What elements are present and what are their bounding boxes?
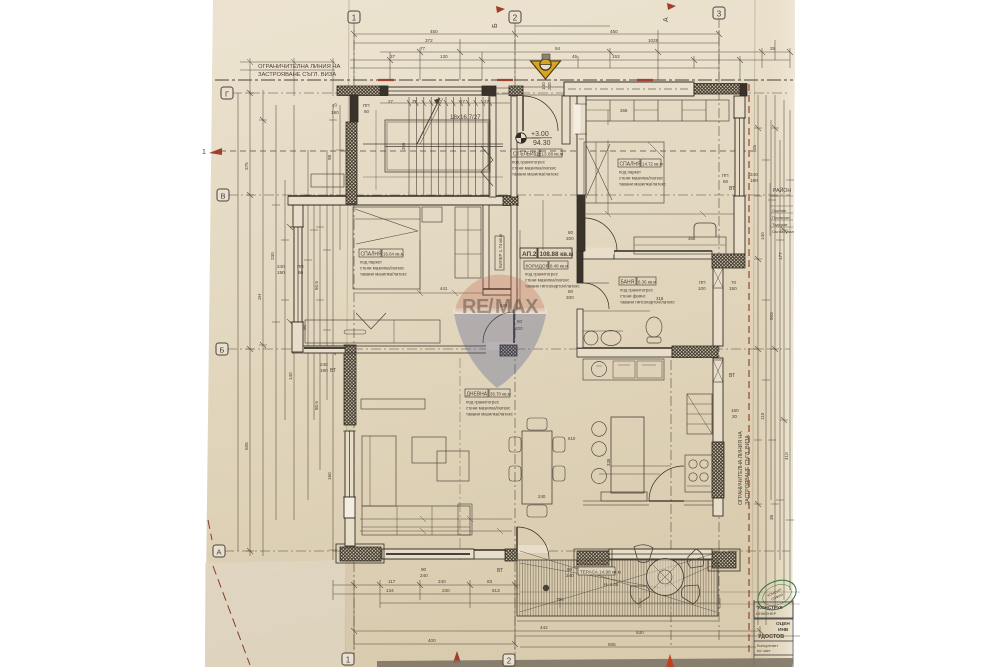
svg-text:153: 153 (612, 54, 620, 59)
svg-text:ТЕРАСА 14.98 кв.м: ТЕРАСА 14.98 кв.м (580, 570, 621, 575)
svg-text:А: А (663, 17, 670, 22)
svg-text:90: 90 (567, 567, 573, 572)
svg-text:под гранитогрес: под гранитогрес (525, 272, 559, 277)
svg-text:375: 375 (244, 162, 249, 170)
svg-text:2: 2 (513, 14, 518, 23)
svg-text:60.5: 60.5 (314, 281, 319, 290)
svg-text:80: 80 (568, 289, 574, 294)
svg-text:под гранитогрес: под гранитогрес (620, 288, 654, 293)
svg-text:190: 190 (277, 270, 285, 275)
svg-text:КИЛЕР 1.74 кв.м: КИЛЕР 1.74 кв.м (498, 234, 503, 268)
svg-text:20: 20 (732, 414, 738, 419)
svg-text:240: 240 (566, 573, 574, 578)
svg-text:В: В (220, 192, 225, 201)
svg-text:стени мазилка/латекс: стени мазилка/латекс (466, 406, 511, 411)
svg-text:98: 98 (327, 154, 332, 160)
svg-text:400: 400 (428, 638, 436, 643)
svg-text:8.48 кв.м: 8.48 кв.м (550, 264, 568, 269)
svg-text:190: 190 (750, 178, 758, 183)
svg-text:Н=1.05: Н=1.05 (604, 582, 619, 587)
svg-text:ОГРАНИЧИТЕЛНА ЛИНИЯ НА: ОГРАНИЧИТЕЛНА ЛИНИЯ НА (258, 64, 341, 70)
svg-text:БАНЯ: БАНЯ (621, 280, 635, 286)
svg-text:стени мазилка/латекс: стени мазилка/латекс (525, 278, 570, 283)
svg-text:610: 610 (568, 436, 576, 441)
svg-text:стени мазилка/латекс: стени мазилка/латекс (619, 176, 664, 181)
svg-text:стени мазилка/латекс: стени мазилка/латекс (512, 166, 557, 171)
svg-text:140: 140 (288, 372, 293, 380)
svg-text:1: 1 (346, 656, 351, 665)
svg-text:27: 27 (436, 99, 441, 104)
svg-text:90: 90 (302, 324, 307, 330)
svg-text:200: 200 (547, 82, 552, 90)
svg-text:150: 150 (731, 408, 739, 413)
svg-text:200: 200 (566, 295, 574, 300)
svg-text:100: 100 (541, 82, 546, 90)
svg-text:140: 140 (760, 232, 765, 240)
svg-text:134: 134 (386, 588, 394, 593)
svg-text:под гранитогрес: под гранитогрес (512, 160, 546, 165)
svg-text:3: 3 (717, 10, 722, 19)
svg-text:ЗАСТРОЯВАНЕ СЪГЛ. ВИЗА: ЗАСТРОЯВАНЕ СЪГЛ. ВИЗА (258, 72, 336, 78)
svg-text:тавани гипсокартон/латекс: тавани гипсокартон/латекс (620, 300, 675, 305)
svg-text:по част: по част (757, 648, 771, 653)
svg-text:190: 190 (320, 368, 328, 373)
svg-text:ВТ: ВТ (729, 373, 735, 379)
svg-text:441: 441 (440, 286, 448, 291)
svg-text:"КОНСТРУК: "КОНСТРУК (756, 605, 783, 610)
svg-text:А: А (216, 548, 221, 557)
svg-text:240: 240 (277, 264, 285, 269)
svg-text:Г: Г (225, 90, 229, 99)
svg-text:110: 110 (760, 412, 765, 420)
svg-text:14.72 кв.м: 14.72 кв.м (642, 162, 663, 167)
svg-text:613: 613 (492, 588, 500, 593)
svg-text:ОГРАНИЧИТЕЛНА ЛИНИЯ НА: ОГРАНИЧИТЕЛНА ЛИНИЯ НА (738, 431, 744, 505)
svg-text:Тодоров: Тодоров (772, 222, 787, 227)
svg-text:Б: Б (220, 346, 225, 355)
svg-text:MAX: MAX (495, 296, 539, 318)
svg-text:27: 27 (460, 99, 465, 104)
svg-text:706: 706 (556, 597, 564, 602)
svg-text:318: 318 (656, 296, 664, 301)
svg-text:25: 25 (752, 144, 757, 150)
svg-text:38: 38 (769, 514, 774, 520)
svg-text:240: 240 (320, 362, 328, 367)
svg-text:под паркет: под паркет (619, 170, 641, 175)
svg-text:240: 240 (438, 579, 446, 584)
svg-text:335: 335 (606, 458, 611, 466)
svg-text:СПАЛНЯ: СПАЛНЯ (361, 252, 383, 258)
svg-text:80.5: 80.5 (314, 401, 319, 410)
svg-text:372: 372 (425, 38, 433, 43)
svg-text:94: 94 (555, 46, 561, 51)
svg-text:тавани мазилка/латекс: тавани мазилка/латекс (512, 172, 560, 177)
svg-text:тавани мазилка/латекс: тавани мазилка/латекс (360, 272, 408, 277)
svg-text:190: 190 (331, 110, 339, 115)
svg-text:СПАЛНЯ: СПАЛНЯ (620, 162, 642, 168)
svg-text:355: 355 (401, 142, 406, 150)
svg-text:27: 27 (484, 99, 489, 104)
svg-text:ИНЖЕНЕР: ИНЖЕНЕР (756, 611, 777, 616)
svg-text:тавани мазилка/латекс: тавани мазилка/латекс (466, 412, 514, 417)
svg-text:230: 230 (442, 588, 450, 593)
svg-text:60: 60 (723, 179, 729, 184)
svg-text:13.08 кв.м: 13.08 кв.м (542, 152, 564, 157)
svg-text:ПП: ПП (363, 103, 370, 108)
svg-text:36.70 кв.м: 36.70 кв.м (490, 392, 511, 397)
svg-text:КОРИДОР: КОРИДОР (526, 264, 549, 270)
svg-text:под паркет: под паркет (360, 260, 382, 265)
svg-text:РАЙОН: РАЙОН (773, 186, 791, 194)
svg-text:АП.2: АП.2 (522, 251, 537, 258)
svg-text:16.64 кв.м: 16.64 кв.м (383, 252, 404, 257)
svg-text:368: 368 (620, 108, 628, 113)
svg-text:стени мазилка/латекс: стени мазилка/латекс (360, 266, 405, 271)
svg-text:94.30: 94.30 (533, 140, 551, 147)
svg-text:442: 442 (540, 625, 548, 630)
svg-text:ПП: ПП (699, 280, 706, 285)
svg-text:80: 80 (568, 230, 574, 235)
svg-text:1029: 1029 (648, 38, 659, 43)
svg-text:77: 77 (420, 46, 426, 51)
svg-text:60: 60 (298, 270, 304, 275)
svg-text:ОЦЕН: ОЦЕН (776, 621, 790, 627)
svg-text:368: 368 (688, 236, 696, 241)
svg-text:ИНВ: ИНВ (778, 627, 789, 633)
svg-text:ВТ: ВТ (330, 368, 336, 374)
svg-text:240: 240 (538, 494, 546, 499)
svg-text:Б: Б (492, 23, 499, 28)
svg-text:стени фаянс: стени фаянс (620, 294, 647, 299)
svg-text:Съгласувал: Съгласувал (772, 229, 795, 234)
svg-text:450: 450 (430, 29, 438, 34)
svg-text:45: 45 (572, 54, 578, 59)
svg-text:ЗАСТРОЯВАНЕ СЪГЛ. ВИЗА: ЗАСТРОЯВАНЕ СЪГЛ. ВИЗА (745, 435, 751, 505)
svg-text:150: 150 (729, 286, 737, 291)
svg-text:под гранитогрес: под гранитогрес (466, 400, 500, 405)
svg-text:160: 160 (327, 472, 332, 480)
svg-text:450: 450 (610, 29, 618, 34)
svg-text:тавани мазилка/латекс: тавани мазилка/латекс (619, 182, 667, 187)
svg-text:Проверил: Проверил (772, 215, 791, 220)
svg-text:410: 410 (784, 452, 789, 460)
svg-text:90: 90 (421, 567, 427, 572)
svg-text:ПП: ПП (297, 264, 304, 269)
svg-text:177: 177 (778, 252, 783, 260)
svg-text:530: 530 (636, 630, 644, 635)
svg-text:25: 25 (770, 46, 776, 51)
svg-text:240: 240 (420, 573, 428, 578)
svg-text:УДОСТОВ: УДОСТОВ (758, 634, 784, 640)
svg-text:200: 200 (566, 236, 574, 241)
svg-text:ДНЕВНА: ДНЕВНА (467, 392, 488, 398)
svg-text:83: 83 (487, 579, 493, 584)
svg-text:18x16.7/27: 18x16.7/27 (450, 114, 481, 121)
svg-text:100: 100 (698, 286, 706, 291)
svg-text:1: 1 (352, 14, 357, 23)
svg-text:27: 27 (388, 99, 393, 104)
svg-text:ПП: ПП (722, 173, 729, 178)
svg-text:70: 70 (731, 280, 737, 285)
svg-text:ВТ: ВТ (497, 568, 503, 574)
svg-text:505: 505 (608, 642, 616, 647)
svg-text:505: 505 (244, 442, 249, 450)
svg-text:37: 37 (390, 54, 396, 59)
svg-text:230: 230 (270, 252, 275, 260)
svg-text:тавани гипсокартон/латекс: тавани гипсокартон/латекс (525, 284, 580, 289)
svg-text:503: 503 (769, 312, 774, 320)
svg-text:1: 1 (202, 149, 206, 156)
svg-text:+3.00: +3.00 (531, 131, 549, 138)
svg-text:2: 2 (507, 657, 512, 666)
svg-text:ЗН: ЗН (257, 294, 262, 300)
svg-text:6.36 кв.м: 6.36 кв.м (638, 280, 656, 285)
svg-text:СТЪЛБИЩЕ: СТЪЛБИЩЕ (513, 152, 542, 158)
svg-text:ВТ: ВТ (729, 186, 735, 192)
svg-text:Оценил: Оценил (772, 208, 787, 213)
svg-text:27: 27 (412, 99, 417, 104)
svg-text:RE: RE (462, 296, 489, 318)
svg-text:60: 60 (364, 109, 370, 114)
svg-text:108.88 кв.м: 108.88 кв.м (540, 251, 574, 258)
svg-text:117: 117 (388, 579, 396, 584)
svg-text:130: 130 (440, 54, 448, 59)
svg-text:240: 240 (750, 172, 758, 177)
